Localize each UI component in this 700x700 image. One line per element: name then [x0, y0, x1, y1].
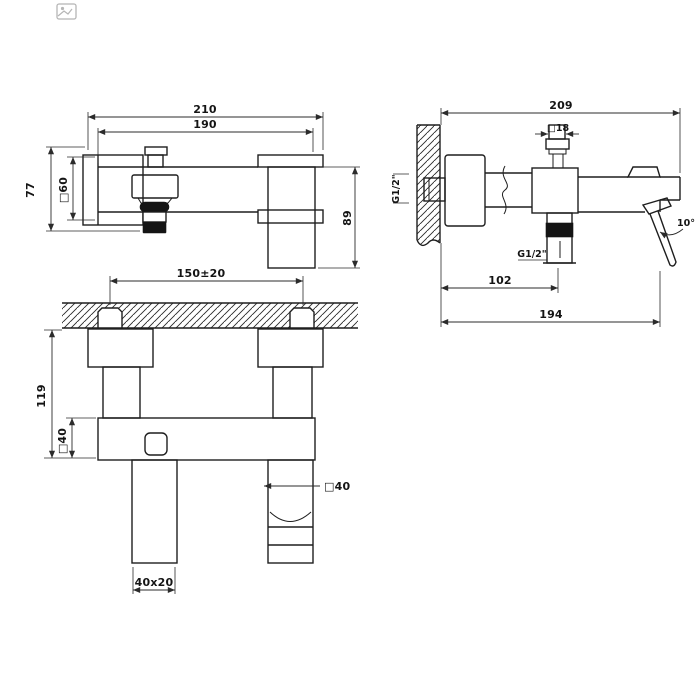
side-view: G1/2" □18 10° G1/2" 209 — [391, 99, 695, 327]
supply-leg-right — [273, 367, 312, 418]
handshower-front — [132, 460, 177, 563]
dim-89: 89 — [341, 210, 354, 226]
escutcheon-side — [445, 155, 485, 226]
diverter-knob — [145, 147, 167, 155]
handshower-head — [132, 175, 178, 198]
dim-sq60: □60 — [57, 177, 70, 203]
cartridge-cap — [628, 167, 660, 177]
flange-top-tab — [258, 155, 323, 167]
technical-drawing-sheet: 210 190 77 □60 89 G1/2" — [0, 0, 700, 700]
dim-outlet-thread: G1/2" — [517, 249, 546, 260]
top-view: 210 190 77 □60 89 — [24, 103, 360, 268]
dim-209: 209 — [549, 99, 573, 112]
dim-sq40-body: □40 — [56, 428, 69, 454]
mixer-body-front — [98, 418, 315, 460]
handshower-ring — [140, 202, 169, 212]
eccentric-union-right — [290, 308, 314, 328]
dim-119: 119 — [35, 384, 48, 408]
dim-150-20: 150±20 — [177, 267, 226, 280]
front-view: 150±20 119 □40 □40 40x20 — [35, 267, 358, 594]
holder-bracket — [83, 155, 143, 225]
hose-connector — [143, 222, 166, 233]
broken-image-icon — [57, 4, 76, 19]
dim-102: 102 — [488, 274, 512, 287]
thread — [546, 223, 573, 237]
handle-housing-top — [268, 167, 315, 268]
mixer-body-side — [532, 168, 578, 213]
spout-front — [268, 460, 313, 563]
dim-77: 77 — [24, 182, 37, 198]
escutcheon-left — [88, 329, 153, 367]
dim-190: 190 — [193, 118, 217, 131]
dim-sq40-spout: □40 — [324, 480, 350, 493]
diverter-button — [145, 433, 167, 455]
dim-194: 194 — [539, 308, 563, 321]
dim-inlet-thread: G1/2" — [391, 174, 402, 203]
dim-40x20: 40x20 — [135, 576, 174, 589]
handle-lever — [650, 211, 676, 266]
eccentric-union-left — [98, 308, 122, 328]
dim-210: 210 — [193, 103, 217, 116]
escutcheon-right — [258, 329, 323, 367]
supply-leg-left — [103, 367, 140, 418]
dim-sq18: □18 — [547, 123, 570, 134]
dim-10deg: 10° — [677, 218, 695, 229]
drawing-svg: 210 190 77 □60 89 G1/2" — [0, 0, 700, 700]
